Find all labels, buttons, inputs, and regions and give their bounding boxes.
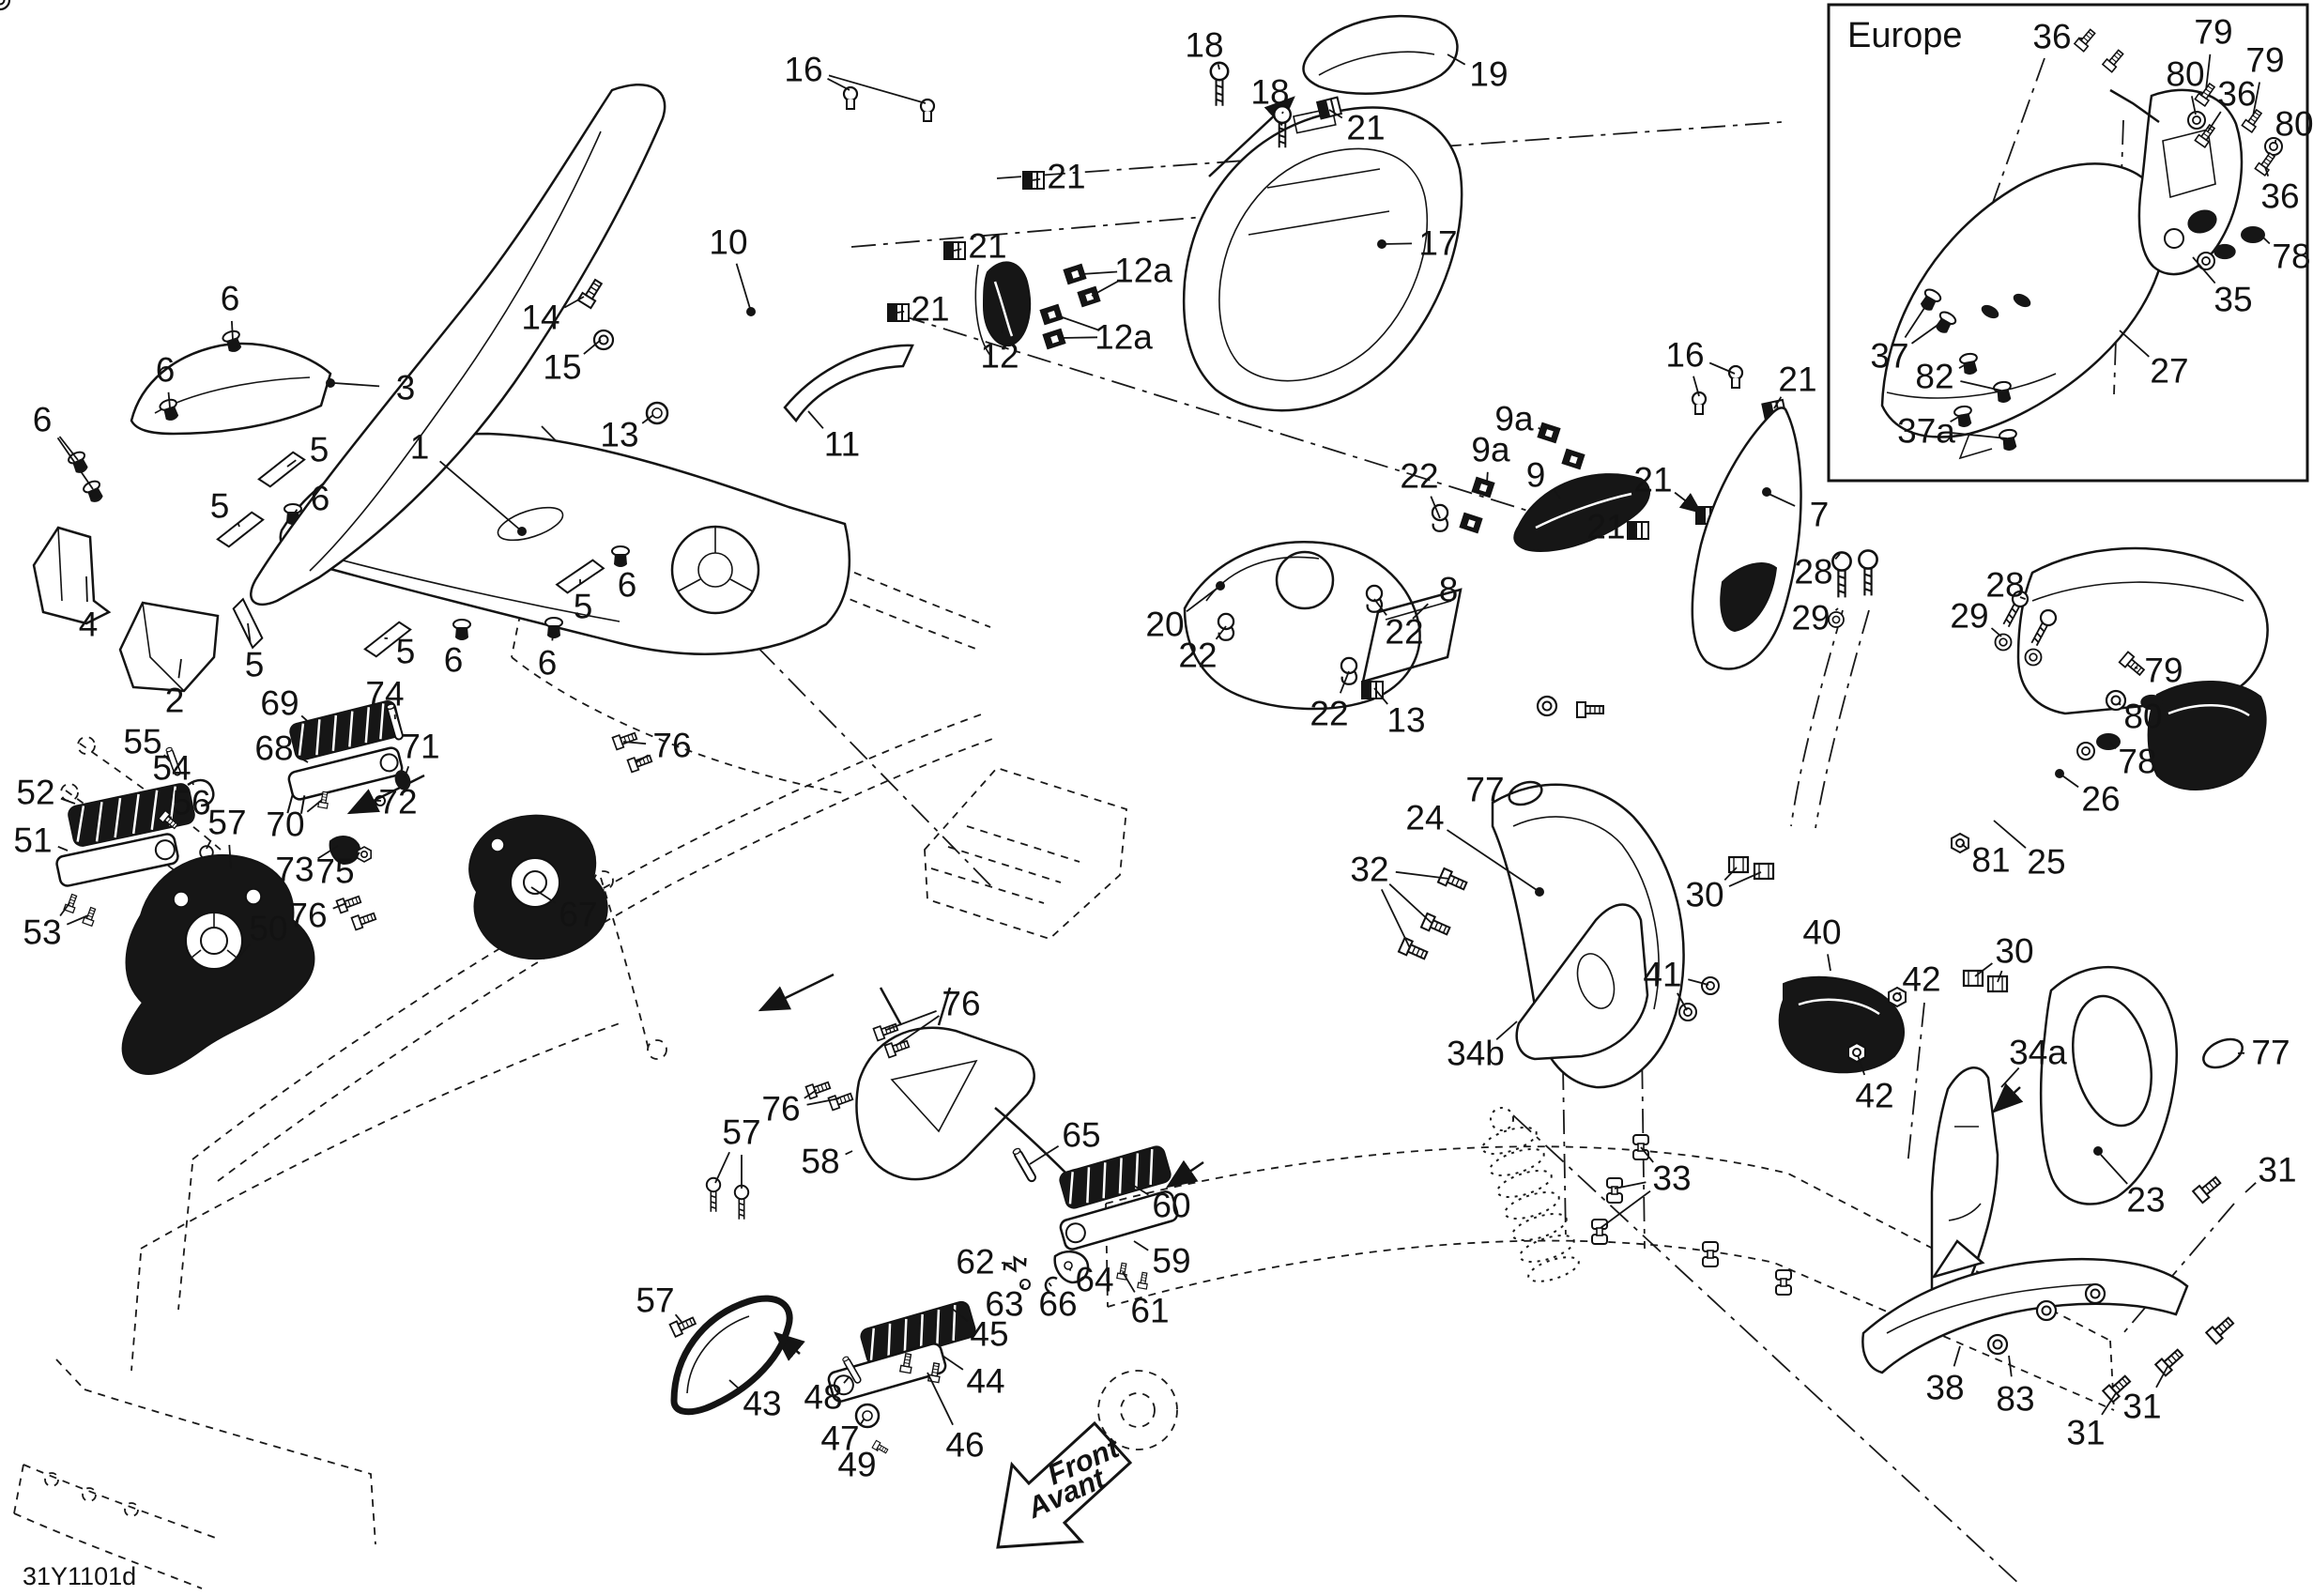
- part-label-21: 21: [1586, 508, 1625, 546]
- part-label-6: 6: [618, 566, 637, 605]
- leader-line-59: [1134, 1241, 1148, 1251]
- leader-line-6: [58, 437, 94, 489]
- part-label-70: 70: [266, 806, 304, 844]
- part-label-22: 22: [1400, 457, 1438, 496]
- part-label-79: 79: [2144, 652, 2183, 690]
- part-65-pin: [1012, 1147, 1036, 1182]
- part-label-68: 68: [254, 729, 293, 768]
- part-label-80: 80: [2275, 105, 2313, 144]
- part-14-15-screw-washer-left: [578, 278, 613, 349]
- leader-line-9a: [1487, 472, 1488, 483]
- leader-line-57: [715, 1152, 729, 1183]
- leader-line-6: [461, 632, 462, 638]
- part-label-12a: 12a: [1095, 318, 1153, 357]
- part-25-inner-bracket: [2149, 682, 2266, 790]
- part-label-76: 76: [652, 727, 691, 765]
- part-label-31: 31: [2066, 1414, 2105, 1452]
- part-label-6: 6: [311, 480, 330, 518]
- part-label-19: 19: [1469, 55, 1508, 94]
- part-label-50: 50: [249, 910, 287, 948]
- part-label-11: 11: [824, 425, 860, 464]
- leader-line-43: [729, 1380, 741, 1390]
- part-label-53: 53: [23, 913, 61, 952]
- part-label-7: 7: [1810, 496, 1830, 534]
- part-label-5: 5: [396, 633, 416, 671]
- part-13-grommet-left: [647, 403, 667, 423]
- part-label-51: 51: [13, 821, 52, 860]
- part-label-75: 75: [315, 852, 354, 891]
- part-label-21: 21: [968, 227, 1006, 266]
- front-direction-arrow: Front Avant: [998, 1423, 1130, 1547]
- part-label-57: 57: [636, 1281, 674, 1320]
- part-label-5: 5: [310, 431, 329, 469]
- part-label-24: 24: [1405, 799, 1444, 837]
- part-label-23: 23: [2126, 1181, 2165, 1220]
- leader-line-18: [1282, 112, 1283, 114]
- leader-line-29: [1836, 608, 1839, 610]
- part-label-76: 76: [761, 1090, 800, 1128]
- leader-line-27: [2120, 330, 2149, 357]
- part-label-26: 26: [2081, 780, 2120, 819]
- part-label-77: 77: [2251, 1034, 2290, 1072]
- leader-line-6: [60, 437, 79, 460]
- part-label-18: 18: [1250, 73, 1289, 112]
- leader-line-12: [1003, 325, 1003, 333]
- part-label-73: 73: [275, 851, 314, 889]
- part-label-12: 12: [980, 337, 1019, 376]
- part-label-22: 22: [1385, 613, 1423, 652]
- leader-line-16: [829, 75, 926, 103]
- part-23-side-plate: [2041, 967, 2177, 1204]
- leader-line-51: [58, 847, 68, 851]
- leader-line-3: [334, 383, 379, 386]
- part-label-2: 2: [165, 682, 185, 720]
- part-label-44: 44: [966, 1362, 1004, 1401]
- part-label-31: 31: [2258, 1151, 2296, 1189]
- part-label-36: 36: [2260, 177, 2299, 216]
- part-57-bolts-center: [670, 1178, 749, 1337]
- part-label-36: 36: [2217, 75, 2256, 114]
- part-38-mud-guard: [1862, 1241, 2187, 1373]
- part-label-74: 74: [365, 675, 404, 714]
- part-label-41: 41: [1643, 956, 1681, 994]
- part-label-77: 77: [1465, 771, 1504, 809]
- part-label-36: 36: [2032, 18, 2071, 56]
- part-label-32: 32: [1350, 851, 1388, 889]
- part-label-6: 6: [444, 641, 464, 680]
- leader-line-11: [808, 411, 823, 428]
- part-12a-clips: [1040, 264, 1100, 348]
- part-label-60: 60: [1152, 1187, 1190, 1225]
- part-40-guard: [1780, 977, 1904, 1072]
- part-label-30: 30: [1995, 932, 2033, 971]
- part-label-16: 16: [784, 51, 822, 89]
- part-label-48: 48: [804, 1378, 842, 1417]
- part-30-square-nuts: [1729, 857, 2007, 991]
- part-62-spring: [1002, 1253, 1029, 1275]
- part-label-59: 59: [1152, 1242, 1190, 1281]
- part-label-81: 81: [1971, 841, 2010, 880]
- part-label-3: 3: [396, 369, 416, 407]
- part-label-66: 66: [1038, 1285, 1077, 1324]
- part-label-72: 72: [378, 783, 417, 821]
- part-label-76: 76: [288, 897, 327, 935]
- part-67-footrest-bracket: [469, 816, 607, 959]
- part-label-67: 67: [559, 896, 597, 934]
- part-label-21: 21: [1778, 361, 1816, 399]
- leader-line-21: [1675, 493, 1701, 513]
- leader-line-12a: [1081, 272, 1117, 275]
- part-31-screw-upper: [2193, 1174, 2223, 1203]
- leader-line-10: [737, 264, 751, 312]
- part-label-9: 9: [1526, 456, 1546, 495]
- part-label-35: 35: [2213, 281, 2252, 319]
- part-label-13: 13: [1386, 701, 1425, 740]
- leader-line-36: [2078, 38, 2082, 39]
- leader-line-40: [1828, 954, 1830, 971]
- leader-line-26: [2060, 774, 2078, 787]
- part-label-33: 33: [1652, 1159, 1691, 1198]
- part-label-78: 78: [2118, 743, 2156, 781]
- leader-line-31: [2245, 1183, 2256, 1192]
- part-label-16: 16: [1665, 336, 1704, 375]
- part-label-6: 6: [156, 351, 176, 390]
- part-label-10: 10: [709, 223, 747, 262]
- leader-line-12a: [1059, 337, 1097, 338]
- part-label-65: 65: [1062, 1116, 1100, 1155]
- part-label-37: 37: [1870, 337, 1908, 376]
- part-label-82: 82: [1915, 358, 1953, 396]
- leader-line-12a: [1057, 315, 1098, 330]
- part-11-trim-strip: [785, 345, 912, 421]
- part-53-screws: [64, 894, 98, 927]
- part-7-side-panel: [1693, 407, 1801, 668]
- part-label-80: 80: [2123, 698, 2162, 736]
- part-label-28: 28: [1985, 566, 2024, 605]
- part-label-34b: 34b: [1447, 1035, 1505, 1073]
- part-label-31: 31: [2122, 1388, 2161, 1426]
- part-61-screws: [1117, 1263, 1149, 1289]
- part-label-4: 4: [79, 606, 99, 644]
- part-label-71: 71: [401, 728, 439, 766]
- part-label-52: 52: [16, 774, 54, 812]
- leader-line-49: [877, 1450, 878, 1451]
- leader-line-18: [1218, 64, 1219, 69]
- shock-absorber-ghost: [1479, 1108, 1582, 1286]
- part-label-9a: 9a: [1471, 431, 1510, 469]
- part-81-nut: [1952, 834, 1968, 852]
- part-label-21: 21: [1633, 461, 1672, 499]
- leader-line-21: [1632, 529, 1637, 529]
- part-label-40: 40: [1802, 913, 1841, 952]
- part-label-21: 21: [1346, 109, 1385, 147]
- part-41-washers: [1679, 977, 1719, 1021]
- part-label-57: 57: [722, 1113, 760, 1152]
- part-label-30: 30: [1685, 876, 1723, 914]
- leader-line-17: [1382, 243, 1412, 244]
- leader-line-61: [1123, 1272, 1135, 1292]
- part-label-5: 5: [210, 487, 230, 526]
- leader-line-62: [1002, 1263, 1012, 1264]
- part-label-37a: 37a: [1897, 412, 1955, 451]
- leader-line-77: [1511, 792, 1513, 793]
- part-label-27: 27: [2150, 352, 2188, 391]
- part-label-14: 14: [521, 299, 559, 337]
- leader-line-52: [61, 799, 75, 804]
- leader-line-78: [2262, 237, 2270, 244]
- part-label-45: 45: [970, 1315, 1008, 1354]
- part-label-38: 38: [1925, 1369, 1964, 1407]
- part-label-6: 6: [33, 401, 53, 439]
- part-2-support: [120, 603, 218, 691]
- part-label-62: 62: [956, 1243, 994, 1281]
- part-label-29: 29: [1791, 599, 1830, 637]
- part-label-76: 76: [942, 985, 980, 1023]
- leader-line-79: [2135, 668, 2137, 668]
- part-label-15: 15: [543, 348, 581, 387]
- leader-line-46: [927, 1373, 953, 1425]
- exploded-parts-diagram: Europe: [0, 0, 2313, 1596]
- part-76-bolts-left: [336, 894, 376, 930]
- part-label-56: 56: [172, 784, 210, 822]
- part-label-34a: 34a: [2009, 1034, 2067, 1072]
- part-label-6: 6: [221, 280, 240, 318]
- leader-line-29: [1992, 628, 2002, 637]
- part-label-8: 8: [1439, 571, 1459, 609]
- part-label-79: 79: [2194, 13, 2232, 52]
- part-label-21: 21: [1047, 158, 1085, 196]
- part-label-1: 1: [410, 428, 430, 467]
- part-label-13: 13: [600, 416, 638, 454]
- part-label-64: 64: [1075, 1261, 1113, 1299]
- part-19-cover: [1303, 16, 1457, 94]
- leader-line-42: [1899, 992, 1900, 995]
- part-label-57: 57: [207, 804, 246, 842]
- part-label-49: 49: [837, 1446, 876, 1484]
- europe-inset-title: Europe: [1847, 16, 1963, 55]
- leader-line-47: [861, 1420, 864, 1424]
- part-label-46: 46: [945, 1426, 984, 1465]
- part-label-25: 25: [2027, 843, 2065, 882]
- part-label-5: 5: [574, 588, 593, 626]
- leader-line-38: [1954, 1346, 1960, 1366]
- part-label-29: 29: [1950, 597, 1988, 636]
- document-code: 31Y1101d: [23, 1562, 136, 1590]
- part-label-58: 58: [801, 1143, 839, 1181]
- leader-line-21: [897, 312, 904, 313]
- part-label-80: 80: [2166, 55, 2204, 94]
- part-label-78: 78: [2272, 238, 2310, 276]
- leader-line-4: [86, 576, 87, 602]
- part-label-54: 54: [152, 749, 191, 788]
- part-label-61: 61: [1130, 1292, 1169, 1330]
- part-label-12a: 12a: [1114, 252, 1172, 290]
- part-13-clip-right: [1362, 682, 1383, 698]
- part-label-83: 83: [1996, 1380, 2034, 1419]
- leader-line-58: [846, 1151, 852, 1155]
- part-label-17: 17: [1418, 224, 1457, 263]
- part-label-28: 28: [1794, 553, 1832, 591]
- part-label-42: 42: [1902, 960, 1940, 999]
- part-label-6: 6: [538, 644, 558, 683]
- part-label-18: 18: [1185, 26, 1223, 65]
- part-76-bolts-mid: [612, 730, 652, 773]
- part-label-21: 21: [911, 290, 949, 329]
- leader-line-21: [1033, 179, 1040, 180]
- part-label-69: 69: [260, 684, 299, 723]
- part-label-43: 43: [743, 1385, 781, 1423]
- parts-diagram-page: Europe: [0, 0, 2313, 1596]
- part-label-22: 22: [1178, 637, 1217, 675]
- part-label-22: 22: [1310, 695, 1348, 733]
- part-label-42: 42: [1855, 1077, 1893, 1115]
- leader-line-6: [232, 321, 233, 340]
- part-label-79: 79: [2245, 41, 2284, 80]
- part-label-5: 5: [245, 646, 265, 684]
- part-14-15-screw-washer-right: [1538, 697, 1603, 717]
